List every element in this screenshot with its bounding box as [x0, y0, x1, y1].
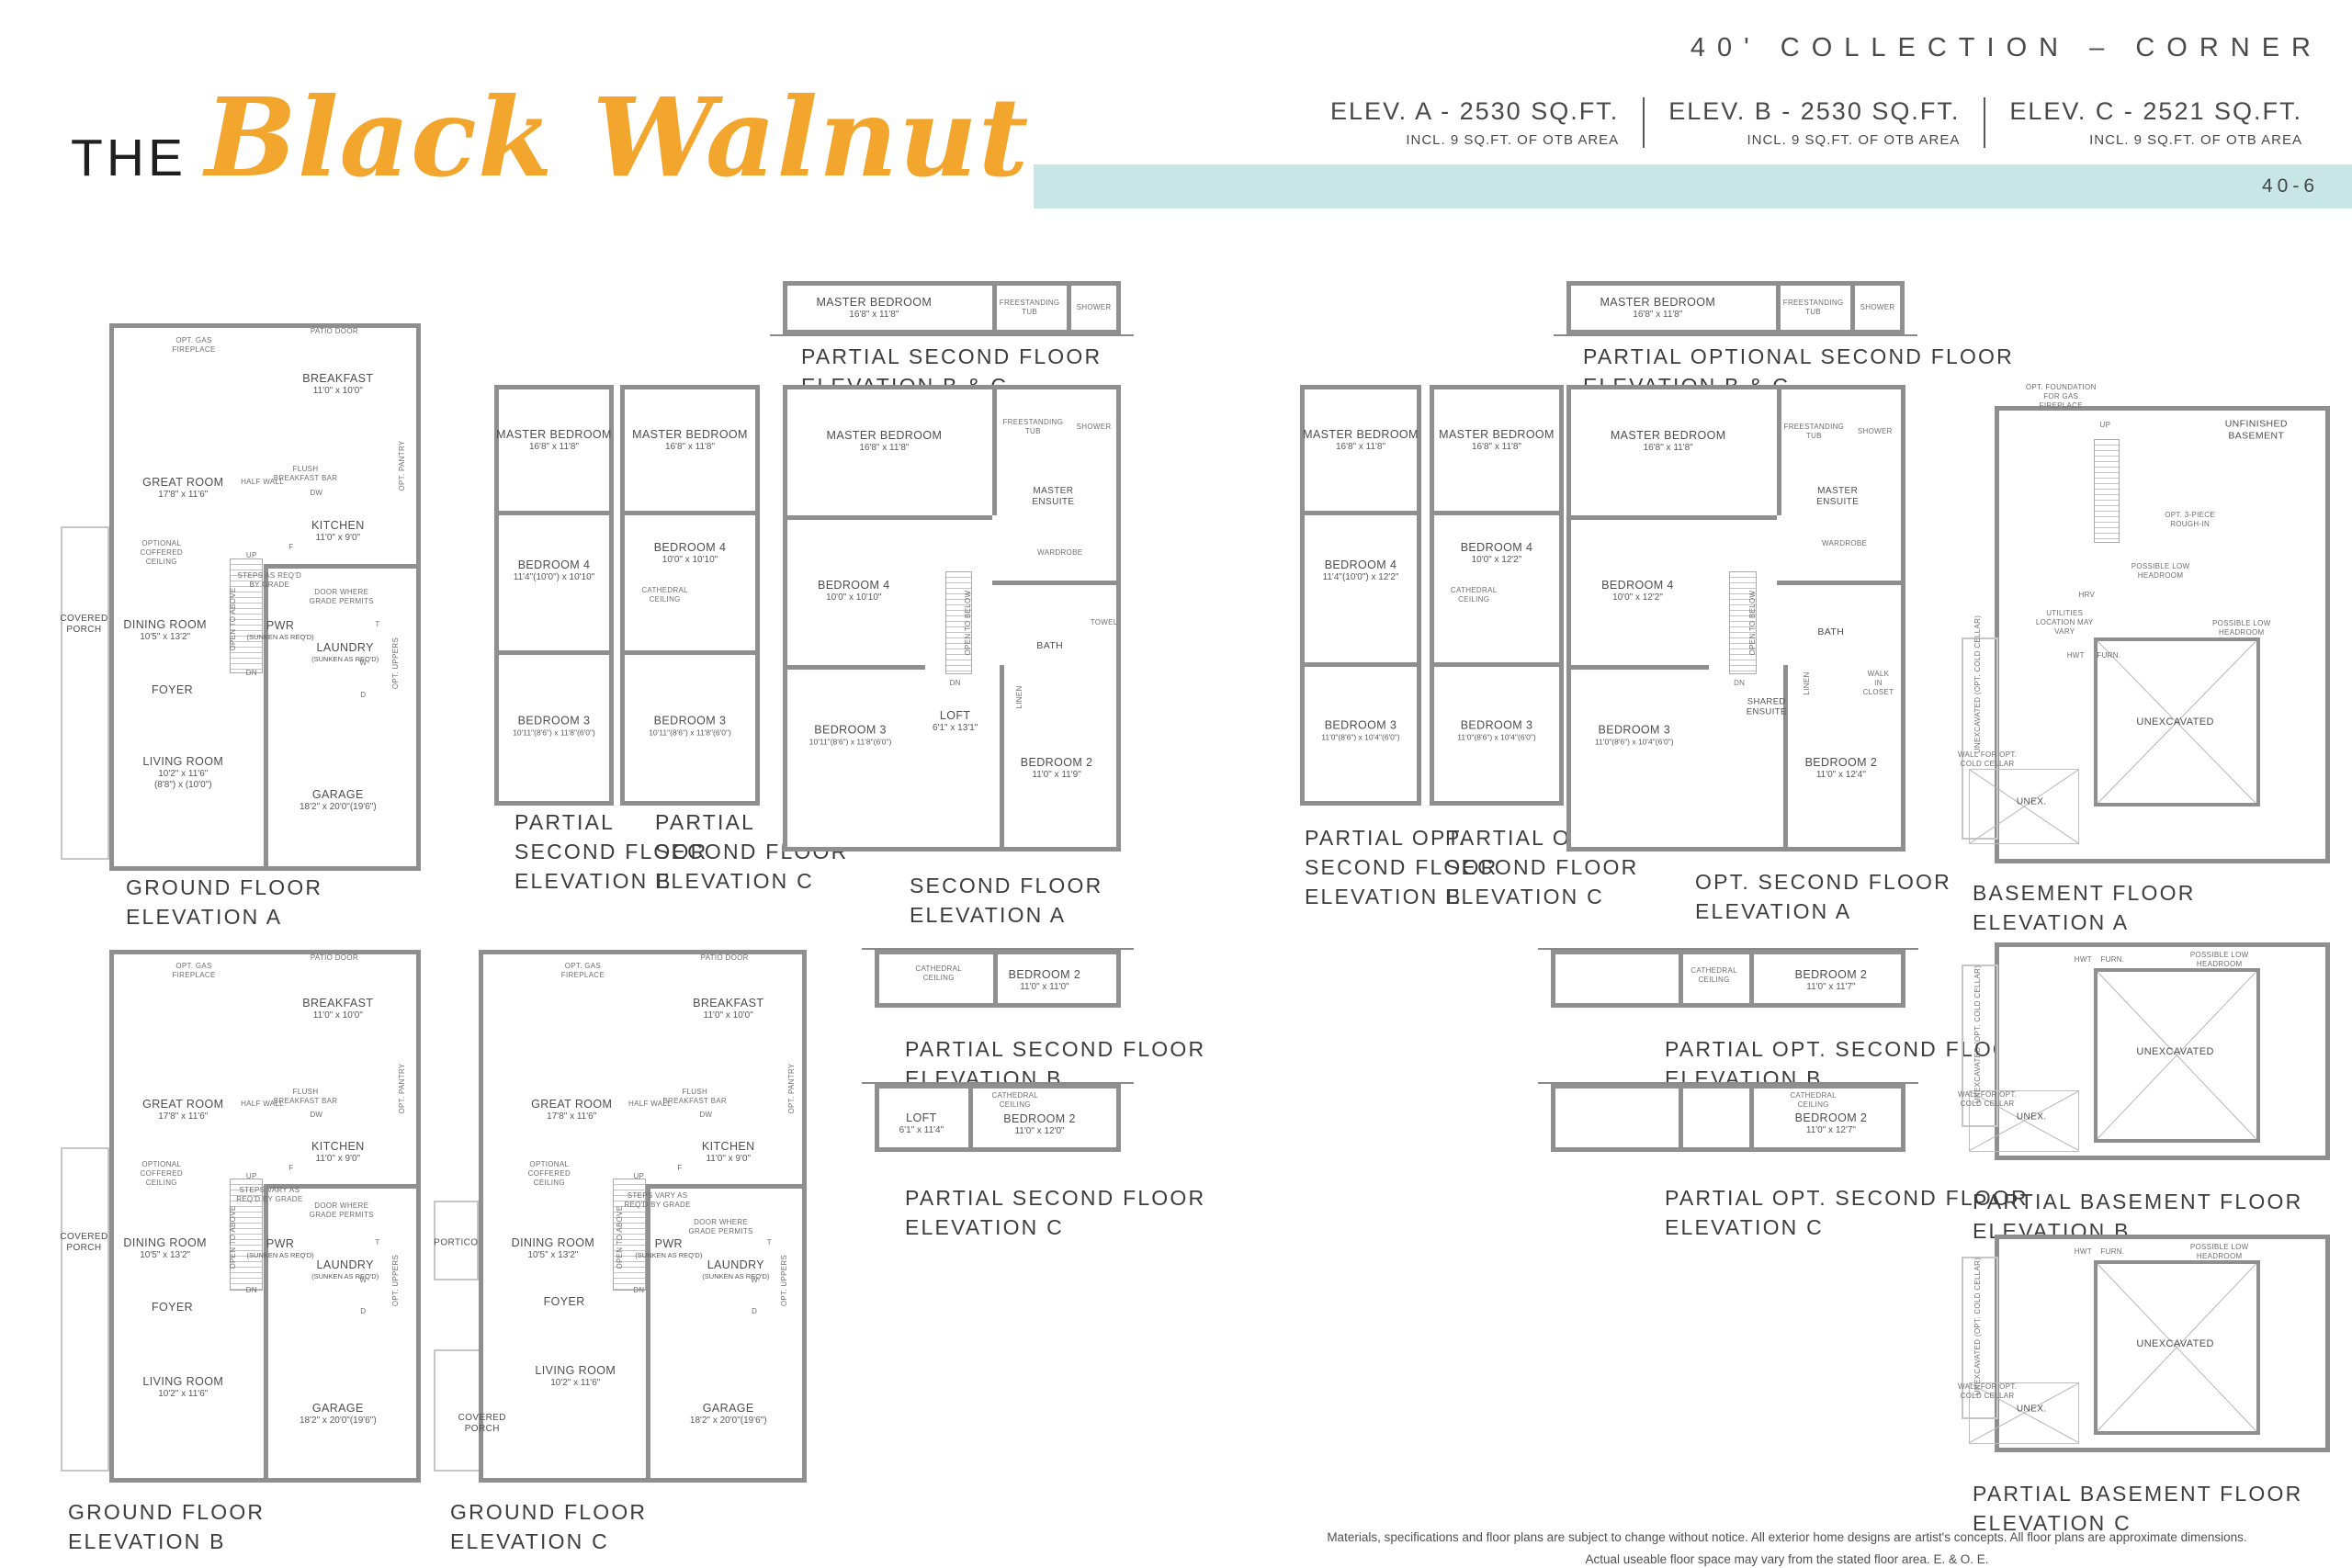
room-dims: 11'4"(10'0") x 12'2"	[1323, 572, 1399, 582]
room-name: LIVING ROOM	[142, 1375, 223, 1388]
wall	[1850, 281, 1855, 334]
room-name: DINING ROOM	[123, 1236, 207, 1249]
room-laundry: LAUNDRY(SUNKEN AS REQ'D)	[311, 1258, 379, 1280]
room-name: FOYER	[152, 1301, 193, 1314]
room-name: COVERED PORCH	[50, 1232, 118, 1254]
note-possible-low-headroom: POSSIBLE LOW HEADROOM	[2183, 951, 2256, 969]
plan-partial-basement-floor-elevation-b: UNEXCAVATED UNEX. HWT FURN. POSSIBLE LOW…	[1962, 942, 2330, 1160]
note-opt-pantry: OPT. PANTRY	[787, 1063, 797, 1113]
note-open-to-above: OPEN TO ABOVE	[616, 1206, 625, 1269]
room-unexcavated: UNEXCAVATED	[2136, 1046, 2213, 1057]
room-name: BEDROOM 3	[513, 714, 595, 727]
elevation-name: ELEV. A - 2530 SQ.FT.	[1330, 97, 1619, 126]
room-dining-room: DINING ROOM10'5" x 13'2"	[123, 1236, 207, 1260]
caption-line: ELEVATION A	[1973, 908, 2196, 937]
caption-ground-floor-elevation-c: GROUND FLOORELEVATION C	[450, 1497, 647, 1556]
room-dims: 16'8" x 11'8"	[1303, 442, 1419, 452]
wall	[1000, 665, 1004, 852]
wall	[494, 511, 614, 515]
room-name: LOFT	[933, 709, 978, 722]
note-utilities-location: UTILITIES LOCATION MAY VARY	[2028, 609, 2101, 637]
room-breakfast: BREAKFAST11'0" x 10'0"	[302, 372, 373, 396]
wall	[992, 581, 1121, 585]
caption-line: ELEVATION C	[450, 1527, 647, 1556]
room-name: FOYER	[544, 1295, 585, 1308]
note-tub: T	[375, 1238, 379, 1247]
room-dims: 10'0" x 12'2"	[1601, 592, 1674, 603]
collection-heading: 40' COLLECTION – CORNER	[1690, 33, 2323, 63]
room-name: BEDROOM 4	[1601, 579, 1674, 592]
room-name: BREAKFAST	[302, 997, 373, 1010]
room-name: BREAKFAST	[302, 372, 373, 385]
note-hrv: HRV	[2079, 591, 2096, 600]
wall	[992, 385, 997, 515]
room-dims: 11'0" x 11'7"	[1795, 982, 1868, 992]
room-bedroom-3: BEDROOM 311'0"(8'6") x 10'4"(6'0")	[1321, 718, 1400, 741]
room-master-bedroom: MASTER BEDROOM16'8" x 11'8"	[816, 296, 932, 320]
room-name: MASTER BEDROOM	[1439, 428, 1555, 441]
elevation-note: INCL. 9 SQ.FT. OF OTB AREA	[2009, 132, 2302, 148]
room-garage: GARAGE18'2" x 20'0"(19'6")	[300, 1402, 377, 1426]
room-breakfast: BREAKFAST11'0" x 10'0"	[302, 997, 373, 1021]
room-bedroom-4: BEDROOM 410'0" x 12'2"	[1461, 541, 1533, 565]
room-name: GARAGE	[690, 1402, 767, 1415]
page-title: THE Black Walnut	[71, 73, 1029, 201]
room-name: KITCHEN	[702, 1140, 755, 1153]
room-name: MASTER BEDROOM	[1611, 429, 1726, 442]
room-unexcavated: UNEXCAVATED	[2136, 1338, 2213, 1349]
brochure-page: 40' COLLECTION – CORNER ELEV. A - 2530 S…	[0, 0, 2352, 1568]
caption-line: PARTIAL OPTIONAL SECOND FLOOR	[1583, 342, 2014, 371]
room-dims: 16'8" x 11'8"	[827, 443, 943, 453]
room-kitchen: KITCHEN11'0" x 9'0"	[311, 1140, 365, 1164]
caption-line: ELEVATION C	[655, 866, 848, 896]
note-unexcavated-opt-cold-cellar: UNEXCAVATED (OPT. COLD CELLAR)	[1973, 615, 1983, 753]
note-dn: DN	[1734, 679, 1745, 688]
room-dims: 11'0" x 10'0"	[302, 386, 373, 396]
room-name: BEDROOM 2	[1009, 968, 1081, 981]
room-dims: 10'5" x 13'2"	[123, 1250, 207, 1260]
room-pwr: PWR(SUNKEN AS REQ'D)	[247, 619, 314, 641]
note-cathedral-ceiling: CATHEDRAL CEILING	[1678, 966, 1751, 985]
plan-ground-floor-elevation-b: BREAKFAST11'0" x 10'0" GREAT ROOM17'8" x…	[61, 950, 421, 1483]
caption-line: ELEVATION C	[1445, 882, 1638, 911]
room-dims: (SUNKEN AS REQ'D)	[247, 633, 314, 641]
room-living-room: LIVING ROOM10'2" x 11'6"	[535, 1364, 616, 1388]
room-garage: GARAGE18'2" x 20'0"(19'6")	[300, 788, 377, 812]
room-foyer: FOYER	[544, 1295, 585, 1308]
room-name: PORTICO	[434, 1238, 478, 1248]
room-dims: 11'0"(8'6") x 10'4"(6'0")	[1321, 732, 1400, 741]
note-hwt: HWT	[2067, 651, 2085, 660]
room-portico: PORTICO	[434, 1238, 478, 1248]
plan-partial-optional-second-floor-elevation-b-and-c: MASTER BEDROOM16'8" x 11'8" FREESTANDING…	[1566, 281, 1905, 334]
disclaimer-line-2: Actual useable floor space may vary from…	[1320, 1549, 2254, 1568]
caption-line: PARTIAL SECOND FLOOR	[905, 1183, 1205, 1213]
title-script: Black Walnut	[205, 73, 1029, 201]
room-foyer: FOYER	[152, 1301, 193, 1314]
plan-partial-basement-floor-elevation-c: UNEXCAVATED UNEX. HWT FURN. POSSIBLE LOW…	[1962, 1235, 2330, 1452]
note-possible-low-headroom: POSSIBLE LOW HEADROOM	[2205, 619, 2278, 637]
room-dims: 16'8" x 11'8"	[496, 442, 612, 452]
room-dims: (SUNKEN AS REQ'D)	[311, 655, 379, 663]
note-shower: SHOWER	[1077, 303, 1112, 312]
note-unexcavated-opt-cold-cellar: UNEXCAVATED (OPT. COLD CELLAR)	[1973, 1257, 1983, 1394]
room-name: UNEX.	[2017, 1404, 2047, 1414]
room-covered-porch: COVERED PORCH	[448, 1413, 516, 1435]
note-opt-uppers: OPT. UPPERS	[780, 1254, 789, 1305]
room-name: BEDROOM 3	[1457, 718, 1536, 731]
note-fridge: F	[288, 1164, 293, 1173]
room-dims: 10'11"(8'6") x 11'8"(6'0")	[649, 728, 731, 737]
room-bedroom-2: BEDROOM 211'0" x 12'7"	[1795, 1111, 1868, 1135]
room-bath: BATH	[1817, 626, 1844, 637]
room-bedroom-3: BEDROOM 310'11"(8'6") x 11'8"(6'0")	[809, 724, 892, 747]
note-door-where-grade-permits: DOOR WHERE GRADE PERMITS	[305, 588, 379, 606]
note-linen: LINEN	[1015, 686, 1024, 709]
room-dims: 10'0" x 12'2"	[1461, 555, 1533, 565]
room-dims: 17'8" x 11'6"	[142, 1111, 223, 1122]
elevation-note: INCL. 9 SQ.FT. OF OTB AREA	[1668, 132, 1960, 148]
caption-line: PARTIAL BASEMENT FLOOR	[1973, 1479, 2302, 1508]
room-master-bedroom: MASTER BEDROOM16'8" x 11'8"	[1303, 428, 1419, 452]
room-loft: LOFT6'1" x 13'1"	[933, 709, 978, 733]
note-opt-gas-fireplace: OPT. GAS FIREPLACE	[157, 962, 231, 980]
room-dims: 11'0" x 11'0"	[1009, 982, 1081, 992]
room-name: BEDROOM 4	[1461, 541, 1533, 554]
cut-line	[1538, 1082, 1918, 1084]
room-name: PWR	[635, 1237, 702, 1250]
room-dims: 11'0" x 12'4"	[1805, 770, 1878, 780]
note-dn: DN	[950, 679, 961, 688]
cut-line	[1538, 948, 1918, 950]
note-possible-low-headroom: POSSIBLE LOW HEADROOM	[2124, 562, 2198, 581]
room-name: BEDROOM 4	[818, 579, 890, 592]
note-opt-uppers: OPT. UPPERS	[391, 1254, 401, 1305]
room-name: MASTER BEDROOM	[632, 428, 748, 441]
room-dims: 10'5" x 13'2"	[512, 1250, 595, 1260]
note-opt-3-piece-rough-in: OPT. 3-PIECE ROUGH-IN	[2154, 511, 2227, 529]
room-dims: 16'8" x 11'8"	[1600, 310, 1715, 320]
room-name: LIVING ROOM	[535, 1364, 616, 1377]
room-bedroom-3: BEDROOM 310'11"(8'6") x 11'8"(6'0")	[513, 714, 595, 737]
note-dryer: D	[360, 691, 366, 700]
room-dims: 10'0" x 10'10"	[654, 555, 727, 565]
room-dims: 11'0" x 12'0"	[1003, 1126, 1076, 1136]
room-dining-room: DINING ROOM10'5" x 13'2"	[123, 618, 207, 642]
room-dims: 6'1" x 11'4"	[899, 1125, 944, 1135]
room-dims: 11'0" x 10'0"	[693, 1010, 763, 1021]
note-dryer: D	[752, 1307, 757, 1316]
room-name: MASTER BEDROOM	[816, 296, 932, 309]
caption-line: GROUND FLOOR	[450, 1497, 647, 1527]
note-dw: DW	[699, 1111, 712, 1120]
room-name: BEDROOM 4	[1323, 558, 1399, 571]
wall	[1067, 281, 1071, 334]
wall	[1430, 662, 1564, 667]
caption-ground-floor-elevation-b: GROUND FLOORELEVATION B	[68, 1497, 265, 1556]
room-kitchen: KITCHEN11'0" x 9'0"	[702, 1140, 755, 1164]
room-dims: 11'0" x 11'9"	[1021, 770, 1093, 780]
note-furnace: FURN.	[2100, 955, 2124, 964]
note-optional-coffered-ceiling: OPTIONAL COFFERED CEILING	[125, 539, 198, 567]
caption-partial-second-floor-c-lower: PARTIAL SECOND FLOORELEVATION C	[905, 1183, 1205, 1242]
note-opt-pantry: OPT. PANTRY	[398, 440, 407, 491]
room-name: KITCHEN	[311, 1140, 365, 1153]
note-fridge: F	[288, 543, 293, 552]
room-unfinished-basement: UNFINISHED BASEMENT	[2222, 418, 2290, 441]
room-dims: 16'8" x 11'8"	[1611, 443, 1726, 453]
room-name: GARAGE	[300, 788, 377, 801]
wall	[646, 1184, 807, 1189]
room-pwr: PWR(SUNKEN AS REQ'D)	[247, 1237, 314, 1259]
wall	[264, 564, 421, 569]
plan-partial-second-floor-elevation-b-lower: CATHEDRAL CEILING BEDROOM 211'0" x 11'0"	[875, 950, 1121, 1008]
room-unexcavated: UNEXCAVATED	[2136, 716, 2213, 728]
note-optional-coffered-ceiling: OPTIONAL COFFERED CEILING	[513, 1160, 586, 1188]
note-dryer: D	[360, 1307, 366, 1316]
note-furnace: FURN.	[2097, 651, 2120, 660]
note-opt-gas-fireplace: OPT. GAS FIREPLACE	[157, 336, 231, 355]
elevation-name: ELEV. B - 2530 SQ.FT.	[1668, 97, 1960, 126]
note-dn: DN	[246, 1286, 257, 1295]
wall	[264, 1184, 268, 1483]
room-name: MASTER ENSUITE	[1804, 486, 1871, 508]
note-door-where-grade-permits: DOOR WHERE GRADE PERMITS	[305, 1201, 379, 1220]
note-cathedral-ceiling: CATHEDRAL CEILING	[1437, 586, 1510, 604]
note-washer: W	[359, 659, 367, 668]
room-dims: 11'0"(8'6") x 10'4"(6'0")	[1457, 732, 1536, 741]
plan-partial-opt-second-floor-elevation-c: MASTER BEDROOM16'8" x 11'8" BEDROOM 410'…	[1430, 385, 1564, 806]
note-open-to-above: OPEN TO ABOVE	[229, 1206, 238, 1269]
elevation-note: INCL. 9 SQ.FT. OF OTB AREA	[1330, 132, 1619, 148]
cut-line	[862, 948, 1134, 950]
room-master-bedroom: MASTER BEDROOM16'8" x 11'8"	[1600, 296, 1715, 320]
room-master-ensuite: MASTER ENSUITE	[1019, 486, 1087, 508]
wall	[968, 1084, 973, 1152]
room-name: FOYER	[152, 683, 193, 696]
note-wall-for-opt-cold-cellar: WALL FOR OPT. COLD CELLAR	[1951, 750, 2024, 769]
note-patio-door: PATIO DOOR	[701, 953, 749, 963]
caption-basement-floor-a: BASEMENT FLOORELEVATION A	[1973, 878, 2196, 937]
note-open-to-above: OPEN TO ABOVE	[229, 587, 238, 650]
room-bedroom-3: BEDROOM 310'11"(8'6") x 11'8"(6'0")	[649, 714, 731, 737]
room-name: COVERED PORCH	[50, 614, 118, 636]
note-possible-low-headroom: POSSIBLE LOW HEADROOM	[2183, 1243, 2256, 1261]
stairs	[2094, 439, 2120, 543]
note-dw: DW	[310, 1111, 322, 1120]
note-shower: SHOWER	[1860, 303, 1895, 312]
plan-partial-opt-second-floor-elevation-b: MASTER BEDROOM16'8" x 11'8" BEDROOM 411'…	[1300, 385, 1421, 806]
plan-second-floor-elevation-a: MASTER BEDROOM16'8" x 11'8" BEDROOM 410'…	[783, 385, 1121, 852]
elevation-spec-c: ELEV. C - 2521 SQ.FT. INCL. 9 SQ.FT. OF …	[1984, 97, 2326, 148]
note-freestanding-tub: FREESTANDING TUB	[993, 299, 1067, 317]
caption-line: OPT. SECOND FLOOR	[1695, 867, 1951, 897]
plan-partial-second-floor-elevation-c-lower: LOFT6'1" x 11'4" CATHEDRAL CEILING BEDRO…	[875, 1084, 1121, 1152]
wall	[783, 665, 925, 670]
room-bedroom-2: BEDROOM 211'0" x 12'0"	[1003, 1112, 1076, 1136]
room-name: BEDROOM 2	[1795, 1111, 1868, 1124]
room-name: MASTER ENSUITE	[1019, 486, 1087, 508]
room-name: BEDROOM 2	[1805, 756, 1878, 769]
note-flush-breakfast-bar: FLUSH BREAKFAST BAR	[658, 1088, 731, 1106]
note-cathedral-ceiling: CATHEDRAL CEILING	[978, 1091, 1052, 1110]
room-name: MASTER BEDROOM	[496, 428, 612, 441]
note-unexcavated-opt-cold-cellar: UNEXCAVATED (OPT. COLD CELLAR)	[1973, 964, 1983, 1102]
room-dims: 10'2" x 11'6"	[142, 769, 223, 779]
room-bedroom-4: BEDROOM 410'0" x 12'2"	[1601, 579, 1674, 603]
note-freestanding-tub: FREESTANDING TUB	[996, 418, 1069, 436]
note-patio-door: PATIO DOOR	[311, 953, 358, 963]
wall	[1566, 665, 1709, 670]
note-furnace: FURN.	[2100, 1247, 2124, 1257]
note-up: UP	[246, 1172, 257, 1181]
room-bedroom-4: BEDROOM 411'4"(10'0") x 12'2"	[1323, 558, 1399, 582]
room-kitchen: KITCHEN11'0" x 9'0"	[311, 519, 365, 543]
room-foyer: FOYER	[152, 683, 193, 696]
note-tub: T	[375, 620, 379, 629]
room-dims: (SUNKEN AS REQ'D)	[311, 1272, 379, 1280]
plan-partial-second-floor-elevation-c: MASTER BEDROOM16'8" x 11'8" BEDROOM 410'…	[620, 385, 760, 806]
room-name: UNEXCAVATED	[2136, 716, 2213, 728]
room-unex: UNEX.	[2017, 1111, 2047, 1122]
room-name: BEDROOM 4	[514, 558, 594, 571]
room-name: UNFINISHED BASEMENT	[2222, 418, 2290, 441]
room-bedroom-2: BEDROOM 211'0" x 11'7"	[1795, 968, 1868, 992]
room-covered-porch: COVERED PORCH	[50, 614, 118, 636]
room-name: UNEX.	[2017, 1111, 2047, 1122]
plan-basement-floor-elevation-a: UNFINISHED BASEMENT UNEXCAVATED UNEX. OP…	[1962, 392, 2330, 863]
room-laundry: LAUNDRY(SUNKEN AS REQ'D)	[702, 1258, 769, 1280]
elevation-spec-b: ELEV. B - 2530 SQ.FT. INCL. 9 SQ.FT. OF …	[1643, 97, 1984, 148]
room-name: GARAGE	[300, 1402, 377, 1415]
wall	[646, 1184, 650, 1483]
room-dims: 18'2" x 20'0"(19'6")	[300, 1416, 377, 1426]
room-dims: (SUNKEN AS REQ'D)	[247, 1251, 314, 1259]
wall	[1566, 515, 1777, 520]
room-name: BEDROOM 3	[649, 714, 731, 727]
note-opt-foundation-gas-fireplace: OPT. FOUNDATION FOR GAS FIREPLACE	[2024, 383, 2098, 411]
caption-ground-floor-elevation-a: GROUND FLOORELEVATION A	[126, 873, 322, 931]
plan-partial-opt-second-floor-elevation-c-lower: CATHEDRAL CEILING BEDROOM 211'0" x 12'7"	[1551, 1084, 1905, 1152]
plan-ground-floor-elevation-c: BREAKFAST11'0" x 10'0" GREAT ROOM17'8" x…	[434, 950, 807, 1483]
room-bedroom-4: BEDROOM 411'4"(10'0") x 10'10"	[514, 558, 594, 582]
plan-opt-second-floor-elevation-a: MASTER BEDROOM16'8" x 11'8" BEDROOM 410'…	[1566, 385, 1905, 852]
room-covered-porch: COVERED PORCH	[50, 1232, 118, 1254]
room-dims: 11'0" x 12'7"	[1795, 1125, 1868, 1135]
note-cathedral-ceiling: CATHEDRAL CEILING	[1777, 1091, 1850, 1110]
room-dims: 18'2" x 20'0"(19'6")	[300, 802, 377, 812]
room-name: DINING ROOM	[512, 1236, 595, 1249]
caption-opt-second-floor-a: OPT. SECOND FLOORELEVATION A	[1695, 867, 1951, 926]
covered-porch-outline	[61, 1147, 109, 1472]
room-living-room: LIVING ROOM10'2" x 11'6"	[142, 1375, 223, 1399]
caption-line: GROUND FLOOR	[68, 1497, 265, 1527]
room-name: DINING ROOM	[123, 618, 207, 631]
room-bedroom-3: BEDROOM 311'0"(8'6") x 10'4"(6'0")	[1595, 724, 1674, 747]
room-name: MASTER BEDROOM	[827, 429, 943, 442]
room-name: LIVING ROOM	[142, 755, 223, 768]
room-great-room: GREAT ROOM17'8" x 11'6"	[142, 476, 223, 500]
wall	[993, 950, 998, 1008]
room-name: GREAT ROOM	[531, 1098, 612, 1111]
room-bath: BATH	[1036, 640, 1063, 651]
room-breakfast: BREAKFAST11'0" x 10'0"	[693, 997, 763, 1021]
note-wardrobe: WARDROBE	[1822, 539, 1867, 548]
note-dn: DN	[633, 1286, 644, 1295]
room-dims: 17'8" x 11'6"	[531, 1111, 612, 1122]
caption-line: PARTIAL BASEMENT FLOOR	[1973, 1187, 2302, 1216]
room-dims: 10'11"(8'6") x 11'8"(6'0")	[809, 738, 892, 747]
room-master-bedroom: MASTER BEDROOM16'8" x 11'8"	[632, 428, 748, 452]
wall	[1777, 581, 1905, 585]
plan-partial-second-floor-elevation-b-and-c: MASTER BEDROOM16'8" x 11'8" FREESTANDING…	[783, 281, 1121, 334]
room-name: BEDROOM 4	[654, 541, 727, 554]
room-name: BREAKFAST	[693, 997, 763, 1010]
note-linen: LINEN	[1803, 672, 1812, 695]
note-shower: SHOWER	[1077, 423, 1112, 432]
room-name: KITCHEN	[311, 519, 365, 532]
note-wall-for-opt-cold-cellar: WALL FOR OPT. COLD CELLAR	[1951, 1090, 2024, 1109]
room-master-bedroom: MASTER BEDROOM16'8" x 11'8"	[827, 429, 943, 453]
room-bedroom-2: BEDROOM 211'0" x 12'4"	[1805, 756, 1878, 780]
note-open-to-below: OPEN TO BELOW	[1748, 591, 1758, 656]
room-dims: 11'0" x 9'0"	[311, 1154, 365, 1164]
caption-line: PARTIAL SECOND FLOOR	[801, 342, 1102, 371]
room-dims: 10'5" x 13'2"	[123, 632, 207, 642]
page-code: 40-6	[2262, 175, 2319, 197]
note-wardrobe: WARDROBE	[1037, 548, 1082, 558]
note-shower: SHOWER	[1858, 427, 1893, 436]
note-walk-in-closet: WALK IN CLOSET	[1863, 670, 1894, 697]
note-steps-vary: STEPS VARY AS REQ'D BY GRADE	[621, 1191, 695, 1210]
room-dims: (SUNKEN AS REQ'D)	[635, 1251, 702, 1259]
caption-line: SECOND FLOOR	[910, 871, 1102, 900]
room-dims: 11'0" x 9'0"	[311, 533, 365, 543]
room-pwr: PWR(SUNKEN AS REQ'D)	[635, 1237, 702, 1259]
note-opt-uppers: OPT. UPPERS	[391, 637, 401, 688]
room-living-room: LIVING ROOM10'2" x 11'6"(8'8") x (10'0")	[142, 755, 223, 790]
room-dining-room: DINING ROOM10'5" x 13'2"	[512, 1236, 595, 1260]
room-name: BATH	[1817, 626, 1844, 637]
caption-line: ELEVATION A	[1695, 897, 1951, 926]
caption-line: SECOND FLOOR	[1445, 852, 1638, 882]
disclaimer: Materials, specifications and floor plan…	[1320, 1527, 2254, 1568]
room-dims: 18'2" x 20'0"(19'6")	[690, 1416, 767, 1426]
room-name: MASTER BEDROOM	[1303, 428, 1419, 441]
room-name: PWR	[247, 619, 314, 632]
room-name: UNEX.	[2017, 797, 2047, 807]
wall	[1300, 662, 1421, 667]
room-name: MASTER BEDROOM	[1600, 296, 1715, 309]
wall	[1749, 1084, 1754, 1152]
room-name: UNEXCAVATED	[2136, 1046, 2213, 1057]
note-dn: DN	[246, 669, 257, 678]
room-dims: 11'4"(10'0") x 10'10"	[514, 572, 594, 582]
note-washer: W	[359, 1276, 367, 1285]
note-up: UP	[633, 1172, 644, 1181]
caption-line: GROUND FLOOR	[126, 873, 322, 902]
wall	[620, 650, 760, 655]
elevation-spec-a: ELEV. A - 2530 SQ.FT. INCL. 9 SQ.FT. OF …	[1306, 97, 1643, 148]
note-dw: DW	[310, 489, 322, 498]
room-name: LAUNDRY	[311, 641, 379, 654]
room-bedroom-4: BEDROOM 410'0" x 10'10"	[654, 541, 727, 565]
room-great-room: GREAT ROOM17'8" x 11'6"	[142, 1098, 223, 1122]
note-fridge: F	[677, 1164, 682, 1173]
note-flush-breakfast-bar: FLUSH BREAKFAST BAR	[269, 465, 343, 483]
disclaimer-line-1: Materials, specifications and floor plan…	[1320, 1527, 2254, 1549]
